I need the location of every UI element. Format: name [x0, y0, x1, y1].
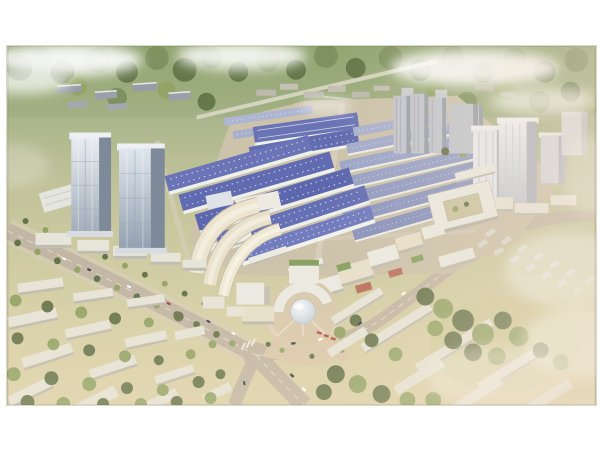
rendering-scene [7, 46, 596, 405]
aerial-rendering-photo [6, 45, 597, 406]
photo-border [0, 0, 600, 450]
